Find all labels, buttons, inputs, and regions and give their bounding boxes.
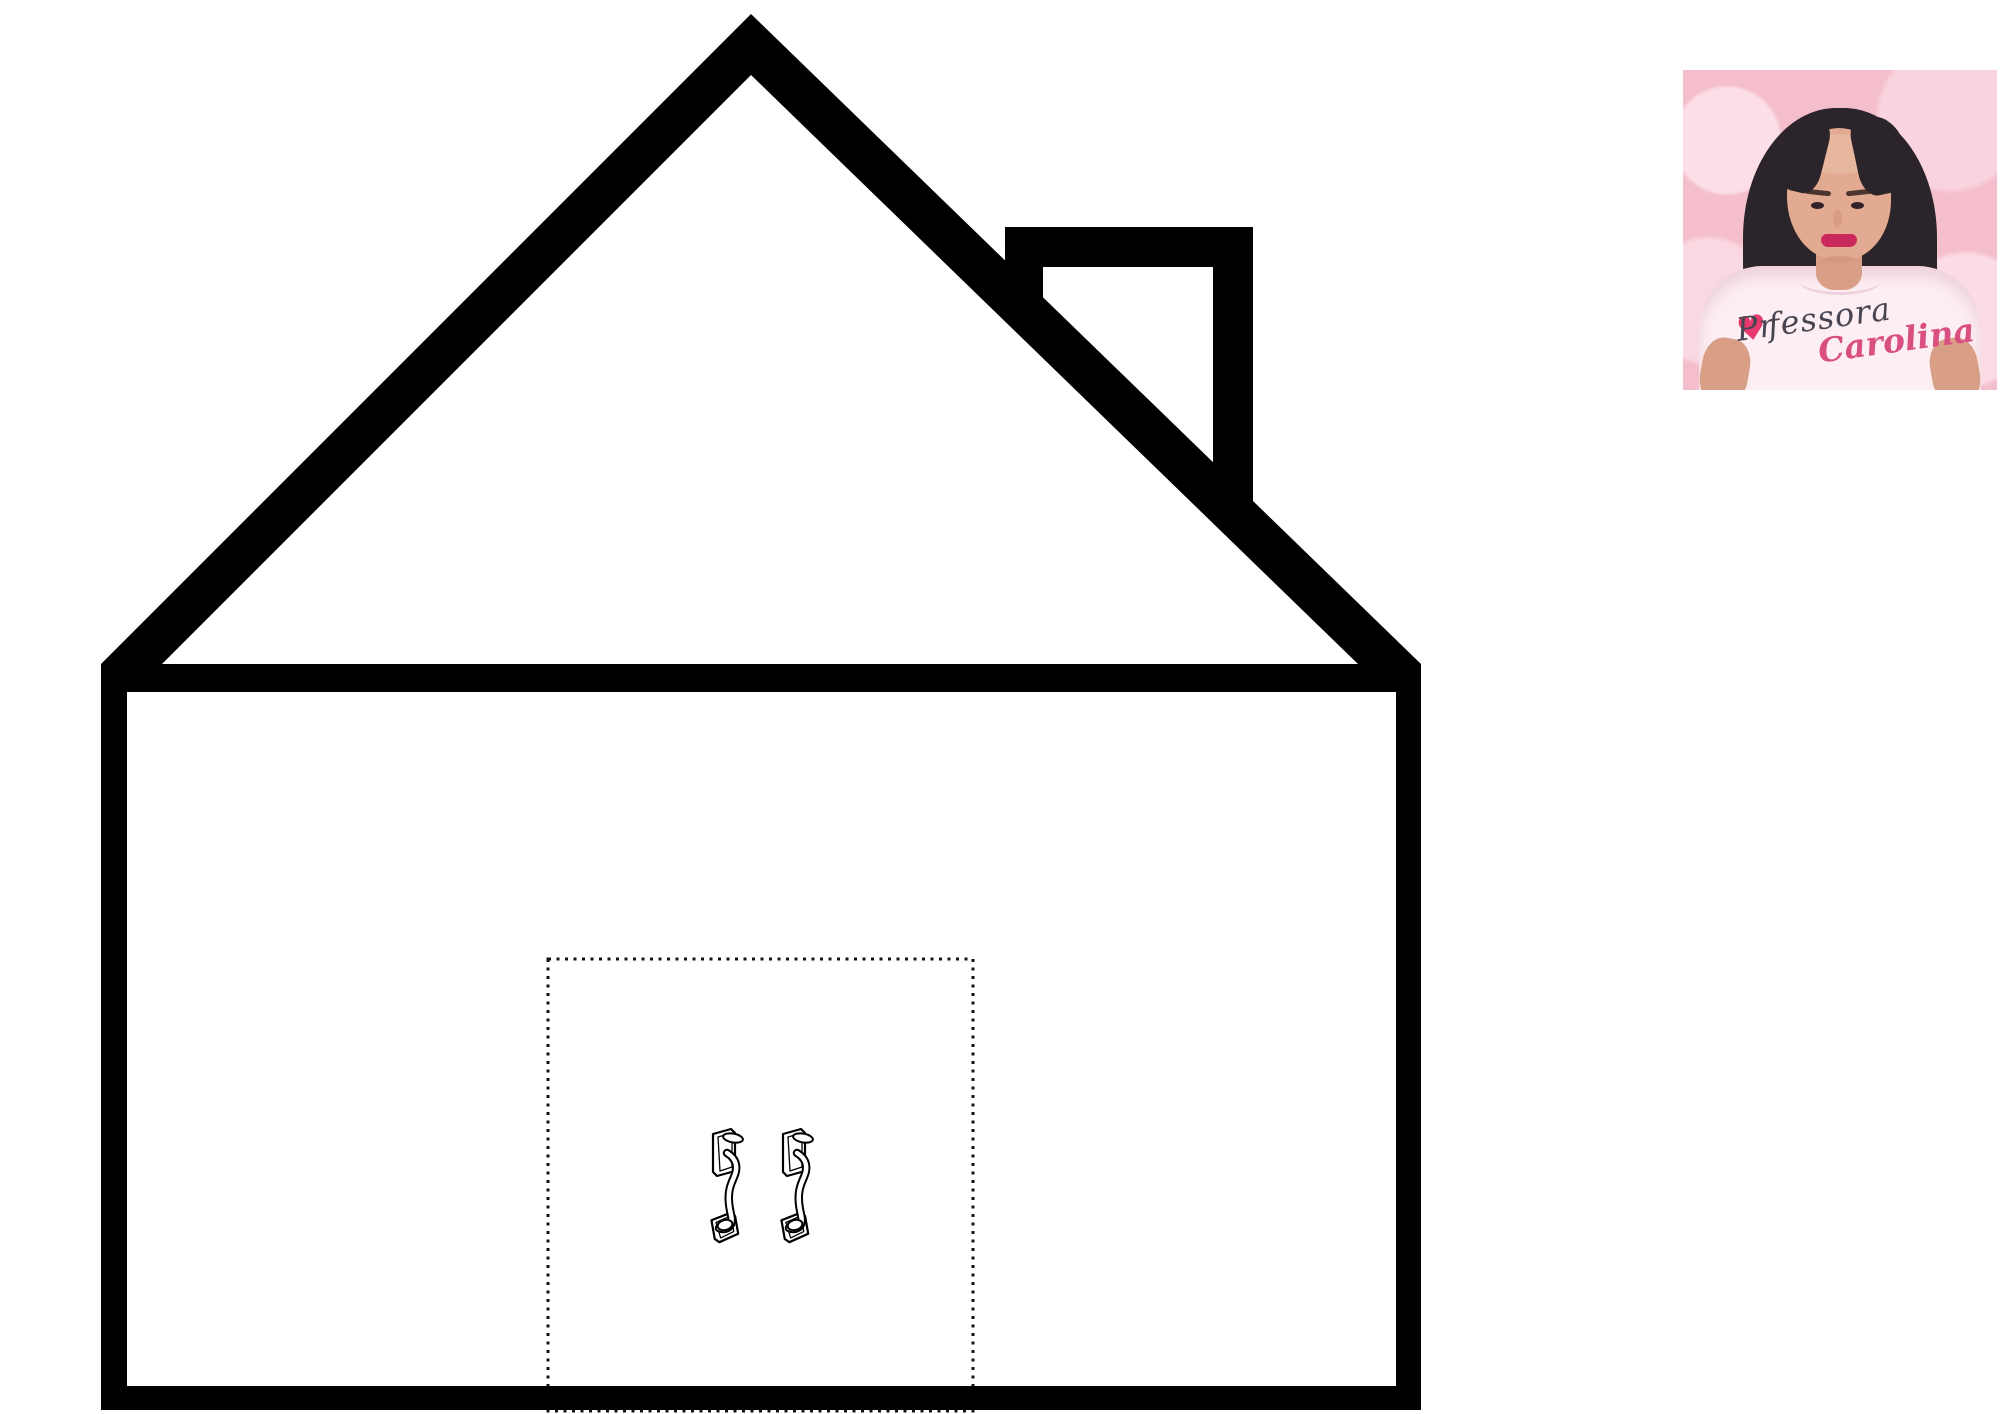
house-body [101,664,1421,1410]
teacher-eye [1811,202,1824,209]
teacher-lips [1821,234,1857,247]
teacher-eye [1851,202,1864,209]
teacher-shirt-collar [1799,266,1881,295]
worksheet-page: Pr♥fessora Carolina [0,0,2000,1414]
house-bottom-border [101,1386,1421,1410]
teacher-photo: Pr♥fessora Carolina [1683,70,1997,390]
teacher-chin [1823,256,1855,263]
teacher-nose [1833,210,1842,228]
